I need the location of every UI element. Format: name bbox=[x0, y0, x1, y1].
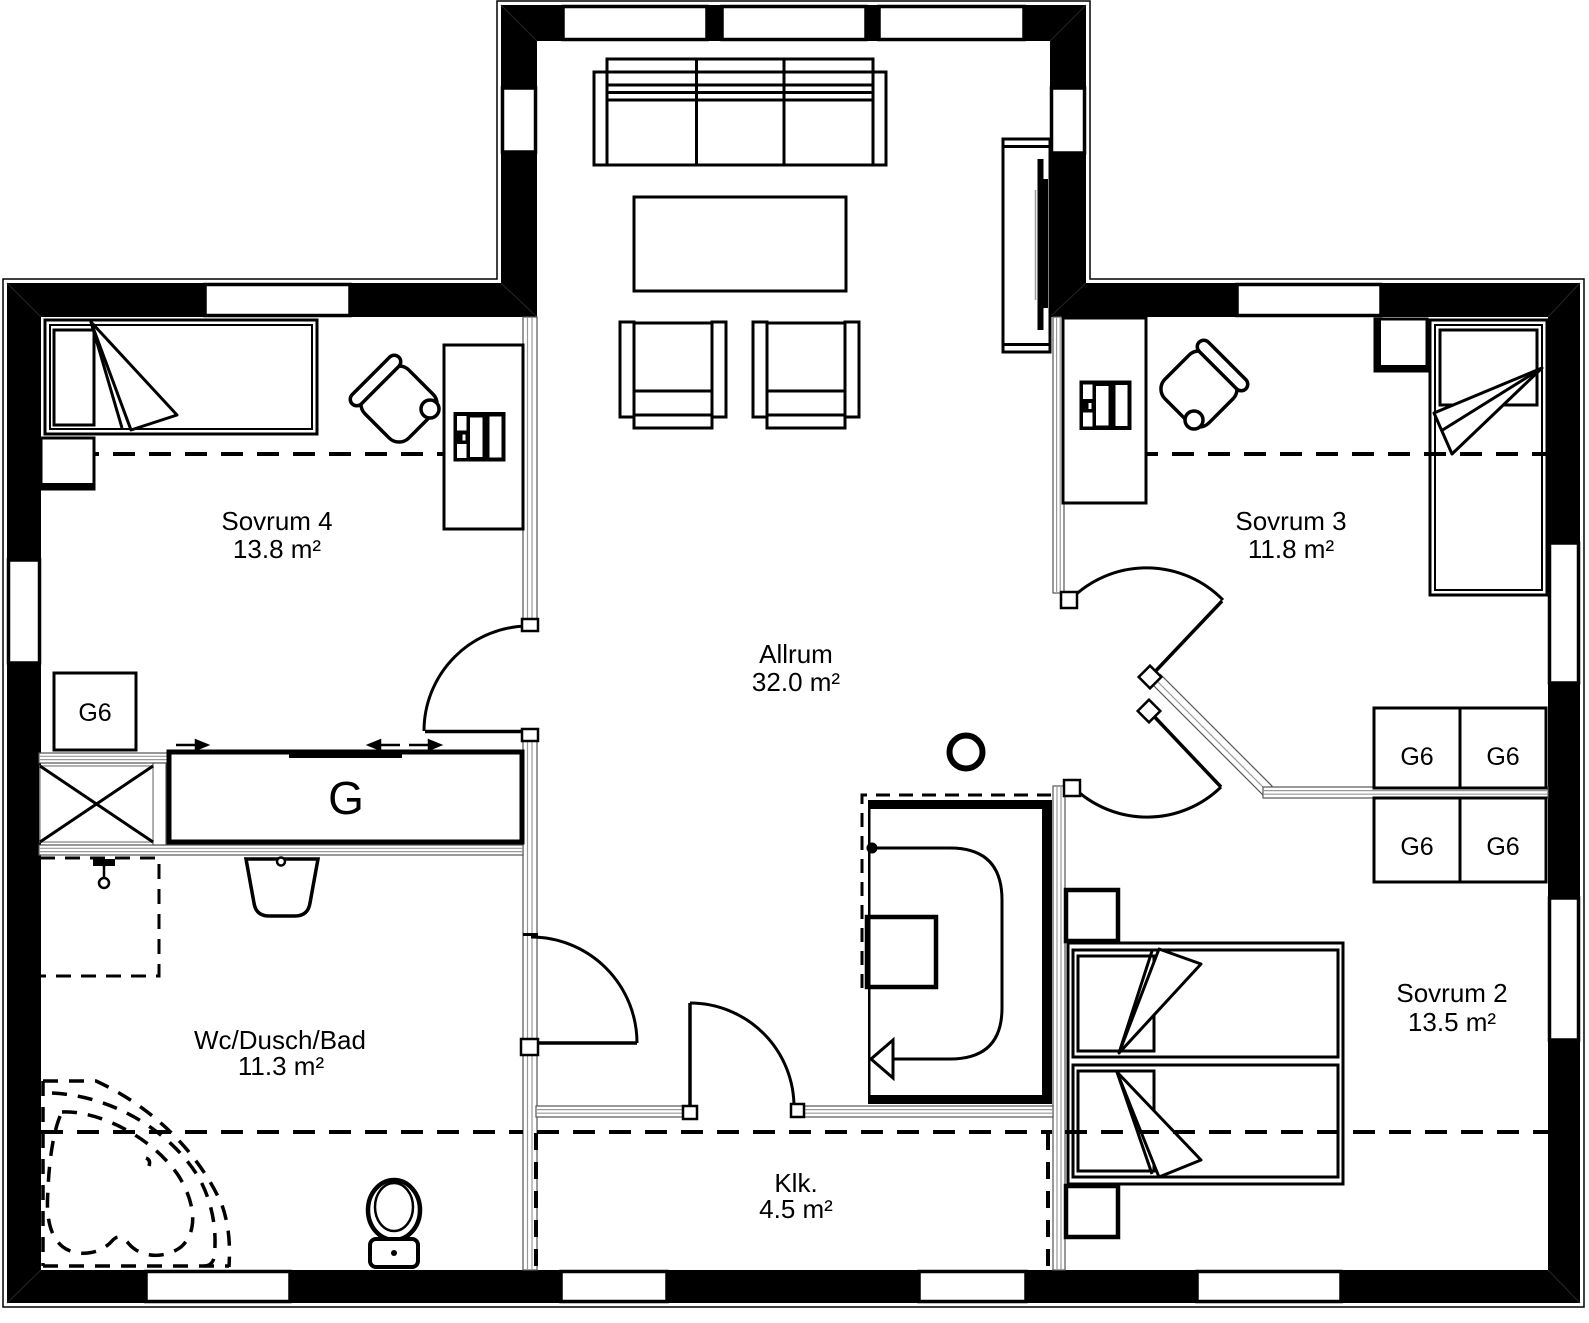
svg-text:4.5 m²: 4.5 m² bbox=[759, 1194, 833, 1224]
svg-text:13.5 m²: 13.5 m² bbox=[1408, 1007, 1496, 1037]
svg-text:G6: G6 bbox=[78, 699, 111, 727]
svg-text:Allrum: Allrum bbox=[759, 639, 833, 669]
svg-text:32.0 m²: 32.0 m² bbox=[752, 667, 840, 697]
svg-text:Sovrum 3: Sovrum 3 bbox=[1235, 506, 1346, 536]
svg-text:G6: G6 bbox=[1400, 743, 1433, 771]
svg-text:G6: G6 bbox=[1486, 743, 1519, 771]
svg-text:G: G bbox=[328, 772, 364, 824]
svg-text:13.8 m²: 13.8 m² bbox=[233, 534, 321, 564]
svg-text:Sovrum 2: Sovrum 2 bbox=[1396, 978, 1507, 1008]
svg-text:G6: G6 bbox=[1400, 833, 1433, 861]
svg-text:11.3 m²: 11.3 m² bbox=[238, 1051, 325, 1081]
svg-text:Sovrum 4: Sovrum 4 bbox=[221, 506, 332, 536]
svg-text:11.8 m²: 11.8 m² bbox=[1248, 534, 1335, 564]
svg-text:G6: G6 bbox=[1486, 833, 1519, 861]
